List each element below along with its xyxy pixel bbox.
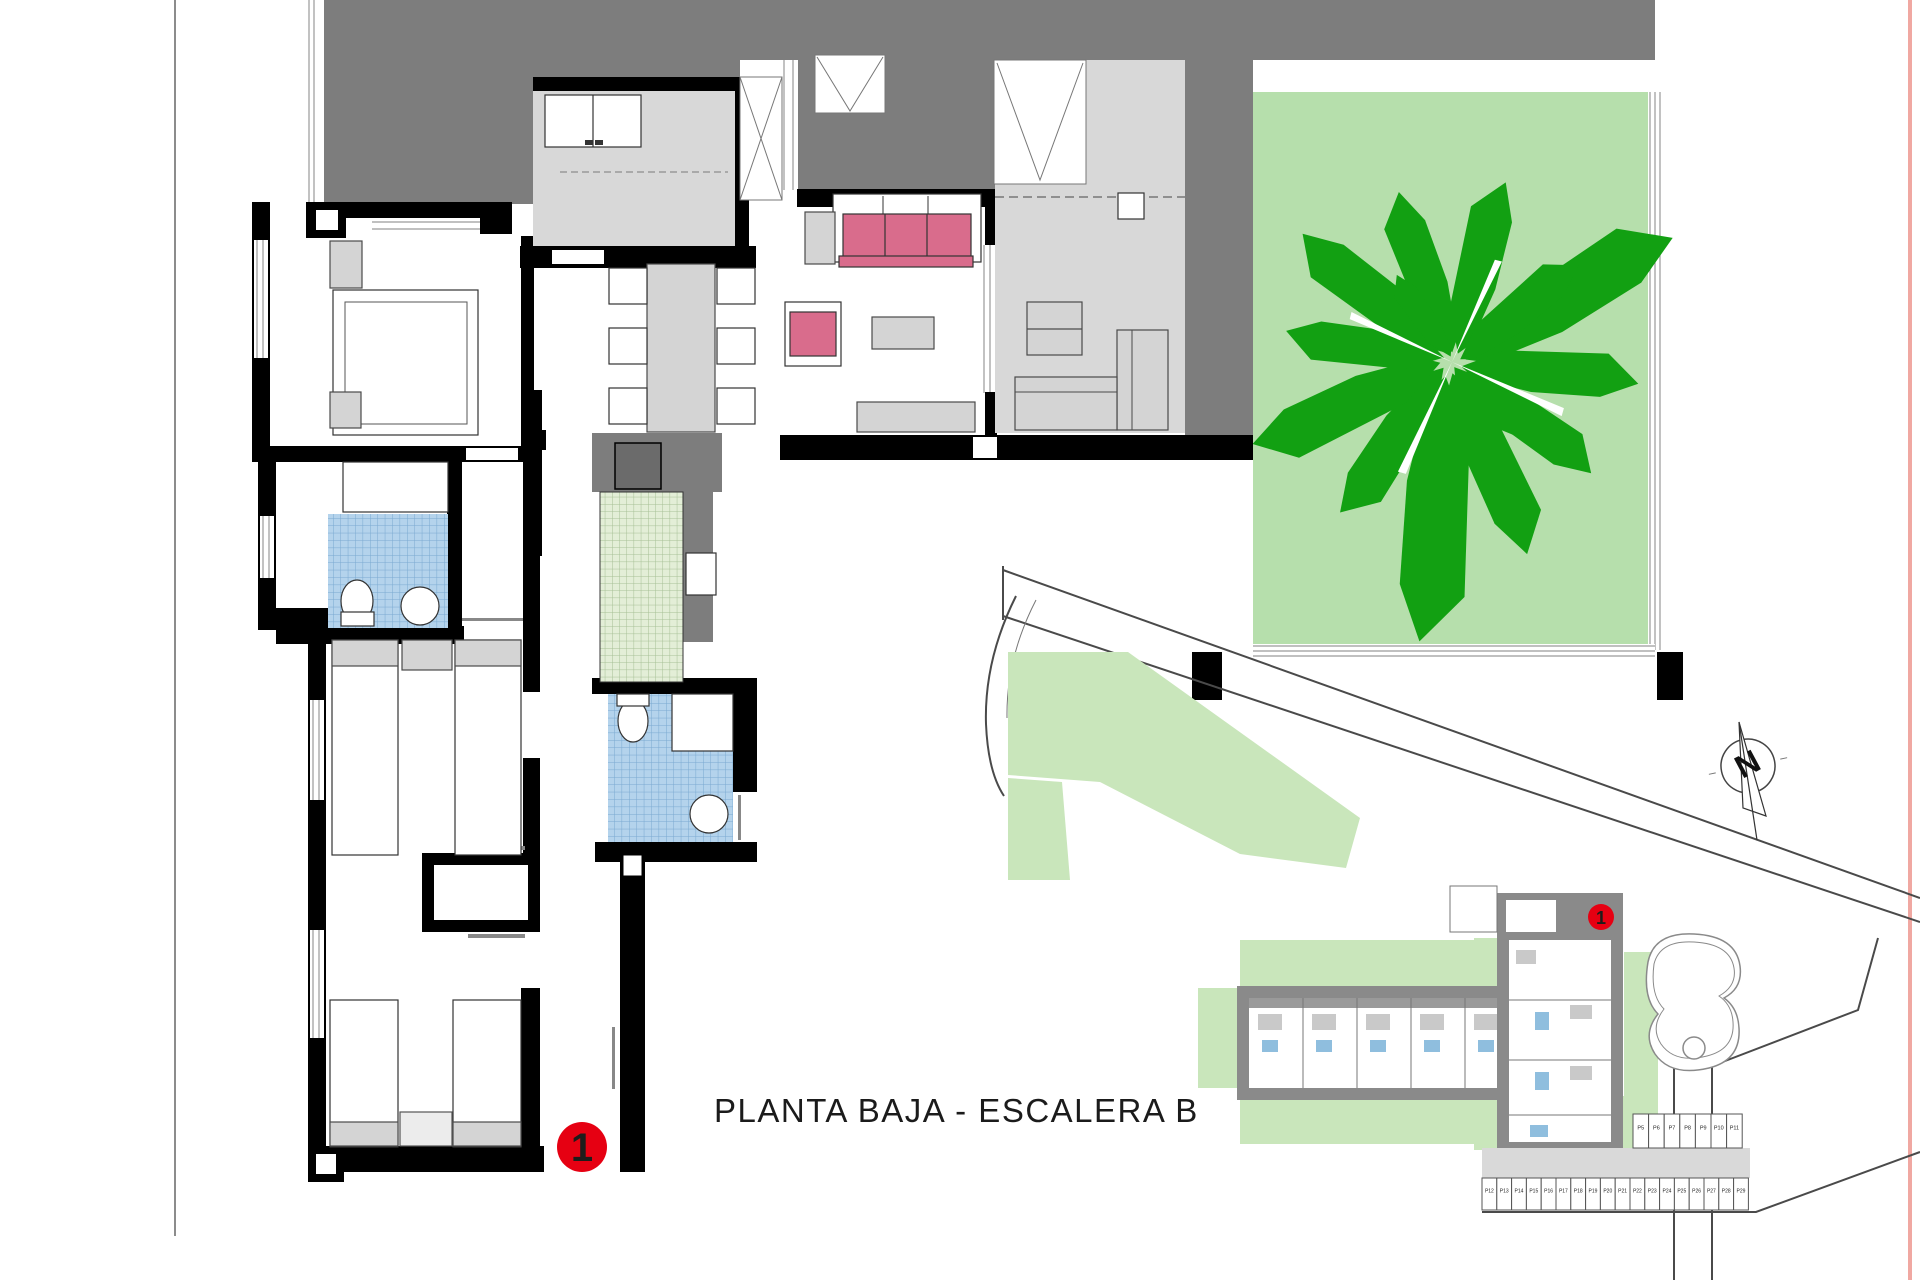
north-arrow-icon: N [1701,719,1796,840]
nightstand [400,1112,452,1146]
parking-stall-label: P23 [1648,1188,1657,1194]
floorplan-page: 1 PLANTA BAJA - ESCALERA B [0,0,1920,1280]
unit-marker: 1 [557,1122,607,1172]
parking-stall-label: P6 [1653,1125,1660,1131]
parking-stall-label: P10 [1714,1125,1724,1131]
bathroom-1 [328,462,448,628]
coffee-table [872,317,934,349]
side-table [805,212,835,264]
bedroom-1 [330,241,478,435]
tv-cabinet [857,402,975,432]
toilet-icon [341,580,374,626]
dining-table [609,264,755,432]
site-plan: 1 P5P6P7P8P9P10P11 P12P13P14P15P16P17P18… [986,566,1920,1280]
single-bed [332,640,398,855]
sink-unit [686,553,716,595]
site-building-marker: 1 [1588,904,1614,930]
parking-stall-label: P15 [1529,1188,1538,1194]
parking-stall-label: P18 [1574,1188,1583,1194]
parking-stall-label: P16 [1544,1188,1553,1194]
plan-title: PLANTA BAJA - ESCALERA B [714,1092,1199,1129]
site-marker-number: 1 [1596,908,1606,928]
bedroom-3 [330,1000,521,1147]
toilet-icon [617,694,649,742]
bench [330,392,361,428]
parking-stall-label: P28 [1722,1188,1731,1194]
stairs [740,77,782,200]
single-bed [455,640,521,855]
bedroom-2 [332,640,521,855]
parking-stall-label: P20 [1603,1188,1612,1194]
site-driveway [1482,1148,1750,1178]
parking-stall-label: P22 [1633,1188,1642,1194]
porch [994,60,1185,433]
sink-icon [401,587,439,625]
parking-stall-label: P17 [1559,1188,1568,1194]
parking-stall-label: P12 [1485,1188,1494,1194]
parking-stall-label: P26 [1692,1188,1701,1194]
parking-stall-label: P24 [1663,1188,1672,1194]
parking-stall-label: P7 [1669,1125,1676,1131]
parking-stall-label: P14 [1515,1188,1524,1194]
parking-stall-label: P11 [1730,1125,1739,1131]
porch-table [1027,302,1082,355]
parking-row-lower: P12P13P14P15P16P17P18P19P20P21P22P23P24P… [1482,1178,1748,1210]
nightstand [402,640,452,670]
page-fold-line [174,0,176,1236]
porch-pergola [994,60,1086,184]
sink-icon [690,795,728,833]
parking-stall-label: P19 [1589,1188,1598,1194]
parking-row-upper: P5P6P7P8P9P10P11 [1633,1114,1742,1148]
parking-stall-label: P5 [1637,1125,1644,1131]
entry-canopy [815,55,885,113]
nightstand [330,241,362,288]
armchair [785,302,841,366]
floorplan-drawing: 1 PLANTA BAJA - ESCALERA B [0,0,1920,1280]
parking-stall-label: P27 [1707,1188,1716,1194]
pool [1646,934,1740,1071]
bathtub [343,462,448,512]
bathroom-2 [608,694,733,842]
shower [672,694,733,751]
sofa [833,194,981,267]
parking-stall-label: P21 [1618,1188,1627,1194]
entrance-hall [533,91,735,246]
parking-stall-label: P13 [1500,1188,1509,1194]
tiled-floor [600,492,683,682]
page-edge-line [1908,0,1912,1280]
parking-stall-label: P25 [1677,1188,1686,1194]
unit-marker-number: 1 [571,1126,593,1170]
parking-stall-label: P8 [1684,1125,1691,1131]
parking-stall-label: P9 [1700,1125,1707,1131]
parking-stall-label: P29 [1737,1188,1746,1194]
